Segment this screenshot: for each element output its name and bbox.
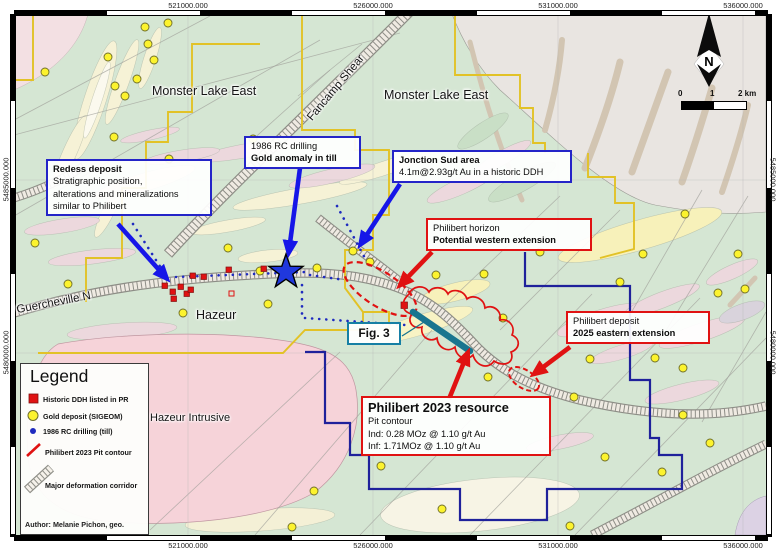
callout-fig3: Fig. 3: [347, 322, 401, 345]
coord-right-5480000: 5480000.000: [769, 325, 778, 381]
callout-philibert-horizon: Philibert horizon Potential western exte…: [426, 218, 592, 251]
callout-redess-title: Redess deposit: [53, 163, 205, 175]
legend-gold-circle-icon: [26, 409, 40, 422]
callout-redess-line1: Stratigraphic position,: [53, 175, 205, 187]
coord-top-536000: 536000.000: [703, 1, 780, 10]
legend-title: Legend: [30, 366, 88, 387]
scalebar-black-half: [682, 102, 714, 109]
coord-bottom-526000: 526000.000: [333, 541, 413, 550]
legend-item-ddh: Historic DDH listed in PR: [43, 395, 128, 404]
north-label: N: [700, 54, 718, 69]
coord-bottom-536000: 536000.000: [703, 541, 780, 550]
scalebar-tick-1: 1: [710, 89, 714, 98]
map-figure: 521000.000 526000.000 531000.000 536000.…: [0, 0, 780, 553]
callout-rc-line2: Gold anomaly in till: [251, 152, 354, 164]
callout-resource-line2: Ind: 0.28 MOz @ 1.10 g/t Au: [368, 428, 544, 440]
callout-rc-drilling: 1986 RC drilling Gold anomaly in till: [244, 136, 361, 169]
callout-jonction-line1: 4.1m@2.93g/t Au in a historic DDH: [399, 166, 565, 178]
legend-box: Legend Historic DDH listed in PR Gold de…: [20, 363, 149, 535]
callout-philibert-resource: Philibert 2023 resource Pit contour Ind:…: [361, 396, 551, 456]
callout-philibert-deposit: Philibert deposit 2025 eastern extension: [566, 311, 710, 344]
callout-jonction-sud: Jonction Sud area 4.1m@2.93g/t Au in a h…: [392, 150, 572, 183]
coord-top-521000: 521000.000: [148, 1, 228, 10]
legend-author: Author: Melanie Pichon, geo.: [25, 520, 124, 529]
callout-deposit-line1: Philibert deposit: [573, 315, 703, 327]
legend-rc-dot-icon: [28, 426, 38, 436]
legend-pit-contour-icon: [25, 442, 43, 458]
callout-horizon-line2: Potential western extension: [433, 234, 585, 246]
coord-top-531000: 531000.000: [518, 1, 598, 10]
legend-item-gold: Gold deposit (SIGEOM): [43, 412, 122, 421]
label-hazeur-intrusive: Hazeur Intrusive: [150, 412, 230, 424]
label-hazeur: Hazeur: [196, 308, 236, 322]
callout-resource-title: Philibert 2023 resource: [368, 400, 544, 415]
coord-bottom-521000: 521000.000: [148, 541, 228, 550]
coord-right-5485000: 5485000.000: [769, 152, 778, 208]
coord-left-5485000: 5485000.000: [2, 152, 11, 208]
legend-item-pit: Philibert 2023 Pit contour: [45, 448, 132, 457]
scalebar: [681, 101, 747, 110]
callout-deposit-line2: 2025 eastern extension: [573, 327, 703, 339]
callout-jonction-title: Jonction Sud area: [399, 154, 565, 166]
callout-redess-line3: similar to Philibert: [53, 200, 205, 212]
label-monster-lake-east-west: Monster Lake East: [152, 84, 256, 98]
neatline-right: [766, 14, 772, 537]
neatline-left: [10, 14, 16, 537]
label-monster-lake-east-east: Monster Lake East: [384, 88, 488, 102]
callout-redess-deposit: Redess deposit Stratigraphic position, a…: [46, 159, 212, 216]
callout-resource-line1: Pit contour: [368, 415, 544, 427]
neatline-top: [14, 10, 768, 16]
legend-ddh-square-icon: [27, 393, 41, 405]
coord-left-5480000: 5480000.000: [2, 325, 11, 381]
callout-horizon-line1: Philibert horizon: [433, 222, 585, 234]
callout-resource-line3: Inf: 1.71MOz @ 1.10 g/t Au: [368, 440, 544, 452]
coord-bottom-531000: 531000.000: [518, 541, 598, 550]
scalebar-tick-0: 0: [678, 89, 682, 98]
coord-top-526000: 526000.000: [333, 1, 413, 10]
callout-redess-line2: alterations and mineralizations: [53, 188, 205, 200]
legend-item-rc: 1986 RC drilling (till): [43, 427, 113, 436]
scalebar-tick-2: 2 km: [738, 89, 756, 98]
callout-rc-line1: 1986 RC drilling: [251, 140, 354, 152]
legend-item-corridor: Major deformation corridor: [45, 481, 137, 490]
